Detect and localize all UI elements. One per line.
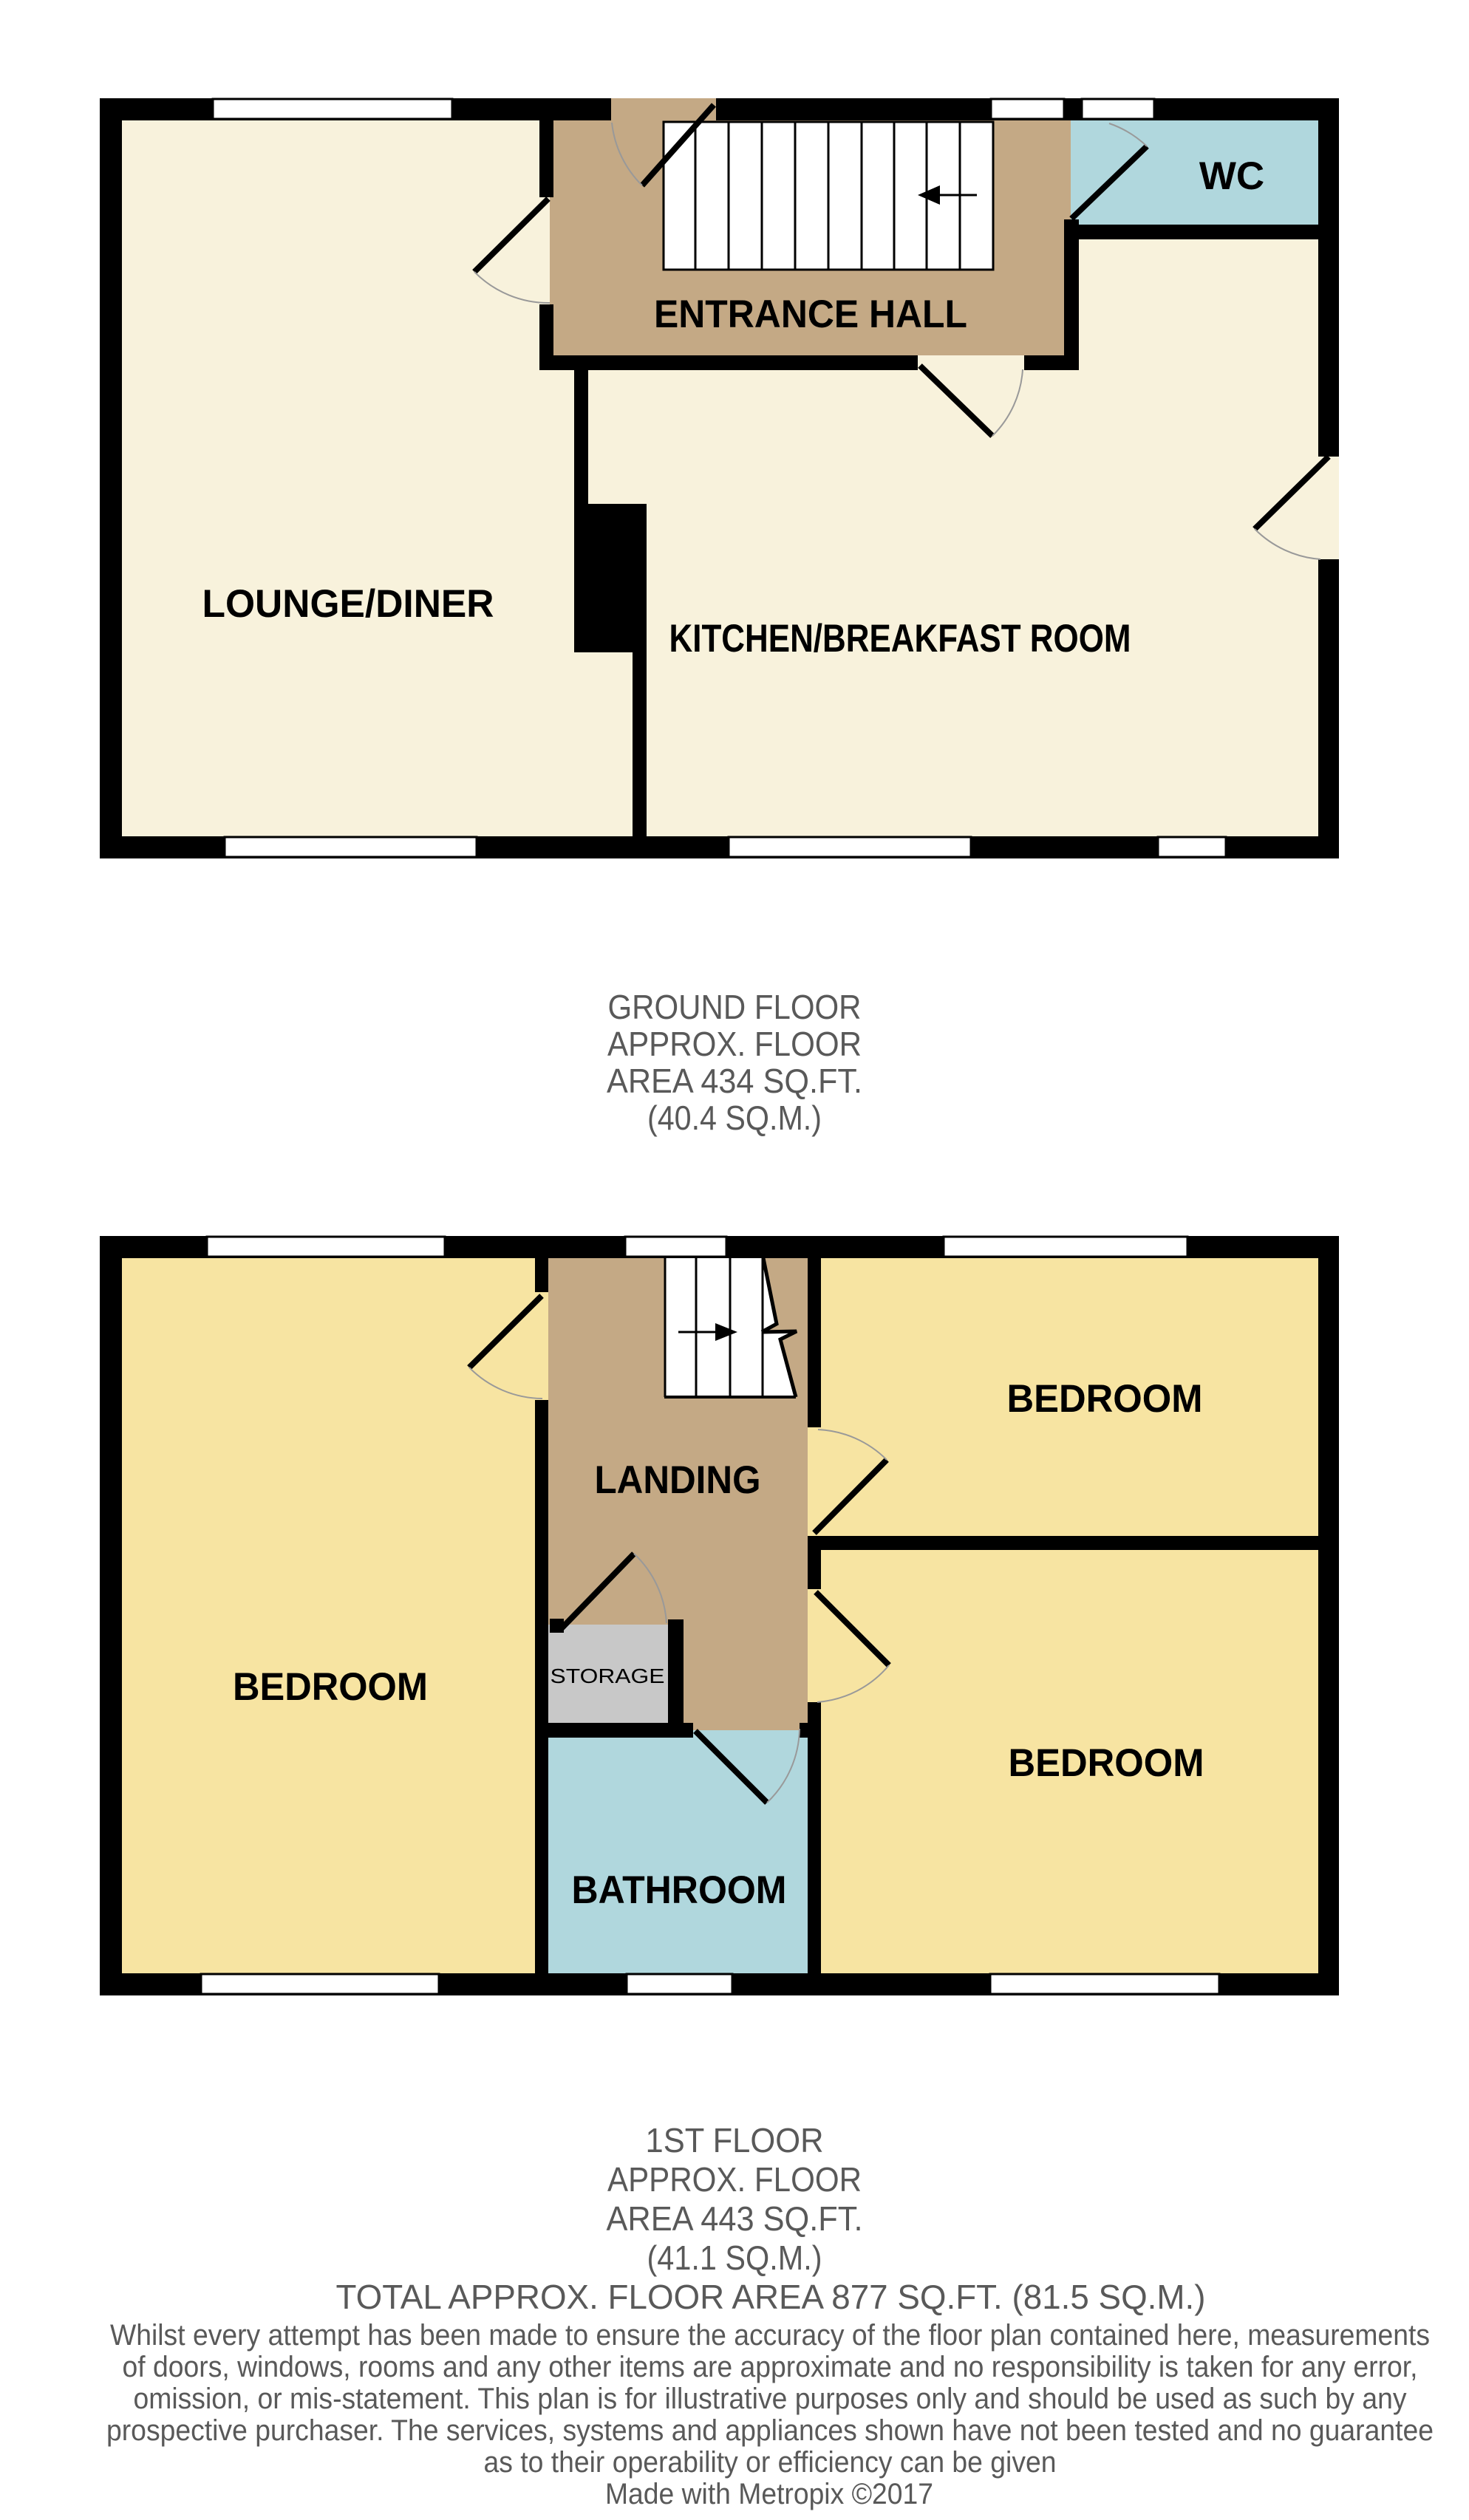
svg-text:APPROX. FLOOR: APPROX. FLOOR xyxy=(607,2160,862,2199)
svg-text:as to their operability or eff: as to their operability or efficiency ca… xyxy=(484,2446,1057,2479)
svg-text:LANDING: LANDING xyxy=(595,1458,761,1502)
svg-text:1ST FLOOR: 1ST FLOOR xyxy=(646,2121,824,2159)
svg-text:APPROX. FLOOR: APPROX. FLOOR xyxy=(607,1025,862,1063)
svg-text:omission, or mis-statement. Th: omission, or mis-statement. This plan is… xyxy=(134,2383,1407,2415)
svg-text:KITCHEN/BREAKFAST ROOM: KITCHEN/BREAKFAST ROOM xyxy=(669,617,1131,660)
svg-text:BATHROOM: BATHROOM xyxy=(572,1868,787,1912)
svg-text:BEDROOM: BEDROOM xyxy=(233,1665,428,1709)
svg-text:Made with Metropix ©2017: Made with Metropix ©2017 xyxy=(605,2478,933,2510)
svg-text:LOUNGE/DINER: LOUNGE/DINER xyxy=(202,582,494,626)
svg-text:AREA 443 SQ.FT.: AREA 443 SQ.FT. xyxy=(607,2199,863,2238)
svg-text:BEDROOM: BEDROOM xyxy=(1007,1377,1203,1421)
svg-text:TOTAL APPROX. FLOOR AREA 877 S: TOTAL APPROX. FLOOR AREA 877 SQ.FT. (81.… xyxy=(336,2278,1206,2316)
svg-text:BEDROOM: BEDROOM xyxy=(1009,1741,1204,1785)
svg-text:ENTRANCE HALL: ENTRANCE HALL xyxy=(654,293,967,336)
svg-text:STORAGE: STORAGE xyxy=(551,1664,665,1687)
svg-text:AREA 434 SQ.FT.: AREA 434 SQ.FT. xyxy=(607,1062,862,1100)
svg-text:(41.1 SQ.M.): (41.1 SQ.M.) xyxy=(647,2239,822,2277)
svg-text:(40.4 SQ.M.): (40.4 SQ.M.) xyxy=(647,1099,822,1137)
svg-text:of doors, windows, rooms and a: of doors, windows, rooms and any other i… xyxy=(123,2351,1418,2383)
svg-text:WC: WC xyxy=(1199,154,1264,198)
svg-text:Whilst every attempt has been: Whilst every attempt has been made to en… xyxy=(110,2319,1430,2352)
svg-text:GROUND FLOOR: GROUND FLOOR xyxy=(608,988,862,1026)
svg-text:prospective purchaser. The ser: prospective purchaser. The services, sys… xyxy=(106,2414,1434,2447)
